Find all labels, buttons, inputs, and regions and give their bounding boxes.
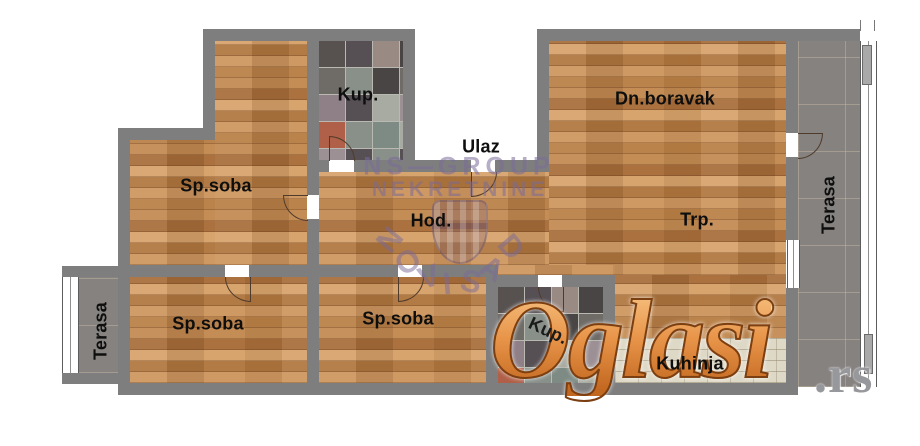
room-label-kup-top: Kup. bbox=[338, 85, 379, 106]
bath-tile bbox=[319, 41, 345, 67]
room-label-ulaz: Ulaz bbox=[462, 137, 500, 158]
wall bbox=[786, 157, 798, 240]
wall bbox=[537, 29, 549, 172]
wall bbox=[786, 288, 798, 383]
wall bbox=[307, 160, 329, 172]
wall bbox=[249, 265, 398, 277]
floor-patch bbox=[498, 265, 615, 275]
room-label-terasa-left: Terasa bbox=[91, 302, 112, 360]
wall bbox=[403, 29, 415, 172]
wall bbox=[786, 41, 798, 133]
floor-sp-soba-top-left bbox=[130, 140, 215, 265]
floor-sp-soba-top-arm bbox=[215, 41, 307, 265]
room-label-sp-soba-bottom-left: Sp.soba bbox=[172, 314, 243, 335]
wall bbox=[118, 128, 215, 140]
room-label-dn-boravak: Dn.boravak bbox=[615, 89, 715, 110]
room-label-kuhinja: Kuhinja bbox=[656, 354, 723, 375]
room-label-trp: Trp. bbox=[680, 210, 714, 231]
floor-plan: Kup. Ulaz Dn.boravak Sp.soba Hod. Trp. T… bbox=[0, 0, 920, 446]
wall bbox=[203, 29, 215, 140]
agency-watermark-line2: NEKRETNINE bbox=[372, 178, 549, 202]
bath-tile bbox=[346, 41, 372, 67]
room-label-sp-soba-bottom-mid: Sp.soba bbox=[362, 309, 433, 330]
window-frame-tick bbox=[860, 20, 875, 31]
bath-tile bbox=[373, 41, 399, 67]
room-label-hod: Hod. bbox=[411, 211, 452, 232]
wall bbox=[118, 128, 130, 395]
room-label-terasa-right: Terasa bbox=[819, 176, 840, 234]
terrace-left-wall bbox=[62, 266, 130, 277]
wall bbox=[537, 29, 860, 41]
living-room-window bbox=[787, 240, 800, 288]
terrace-left-window bbox=[62, 277, 79, 373]
wall bbox=[307, 219, 319, 395]
bath-tile bbox=[346, 122, 372, 148]
portal-watermark-tld: .rs bbox=[814, 346, 873, 405]
window-sash bbox=[862, 45, 872, 85]
room-label-sp-soba-top: Sp.soba bbox=[180, 176, 251, 197]
floor-living-room bbox=[549, 41, 786, 275]
wall bbox=[130, 265, 225, 277]
terrace-left-wall bbox=[62, 373, 130, 384]
portal-watermark: Oglasi bbox=[490, 284, 771, 396]
bath-tile bbox=[373, 122, 399, 148]
terrace-right-glazing bbox=[860, 41, 877, 387]
